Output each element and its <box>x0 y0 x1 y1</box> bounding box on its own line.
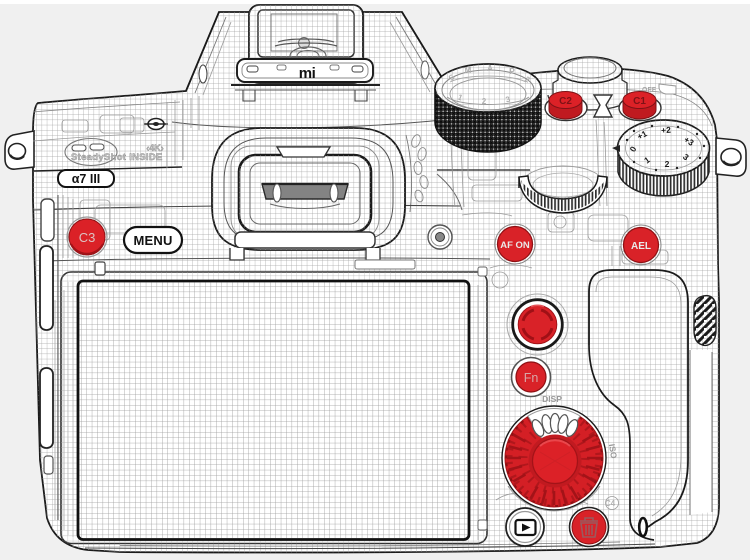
svg-text:MENU: MENU <box>133 233 172 248</box>
svg-text:M: M <box>465 66 472 75</box>
svg-text:C1: C1 <box>633 96 646 107</box>
svg-text:DISP: DISP <box>542 394 562 404</box>
svg-text:SteadyShot INSIDE: SteadyShot INSIDE <box>71 152 163 163</box>
svg-text:+2: +2 <box>661 125 672 136</box>
svg-text:P: P <box>509 67 515 76</box>
svg-text:A: A <box>487 64 493 73</box>
svg-text:C4: C4 <box>605 499 616 508</box>
svg-text:C3: C3 <box>79 230 96 245</box>
svg-text:α7 III: α7 III <box>72 172 101 186</box>
svg-text:AF ON: AF ON <box>500 240 530 251</box>
svg-text:AEL: AEL <box>631 241 651 252</box>
svg-text:C2: C2 <box>559 96 572 107</box>
svg-text:mi: mi <box>299 65 316 82</box>
svg-text:2: 2 <box>482 97 487 106</box>
svg-text:Fn: Fn <box>524 371 539 385</box>
svg-text:2: 2 <box>665 159 670 169</box>
